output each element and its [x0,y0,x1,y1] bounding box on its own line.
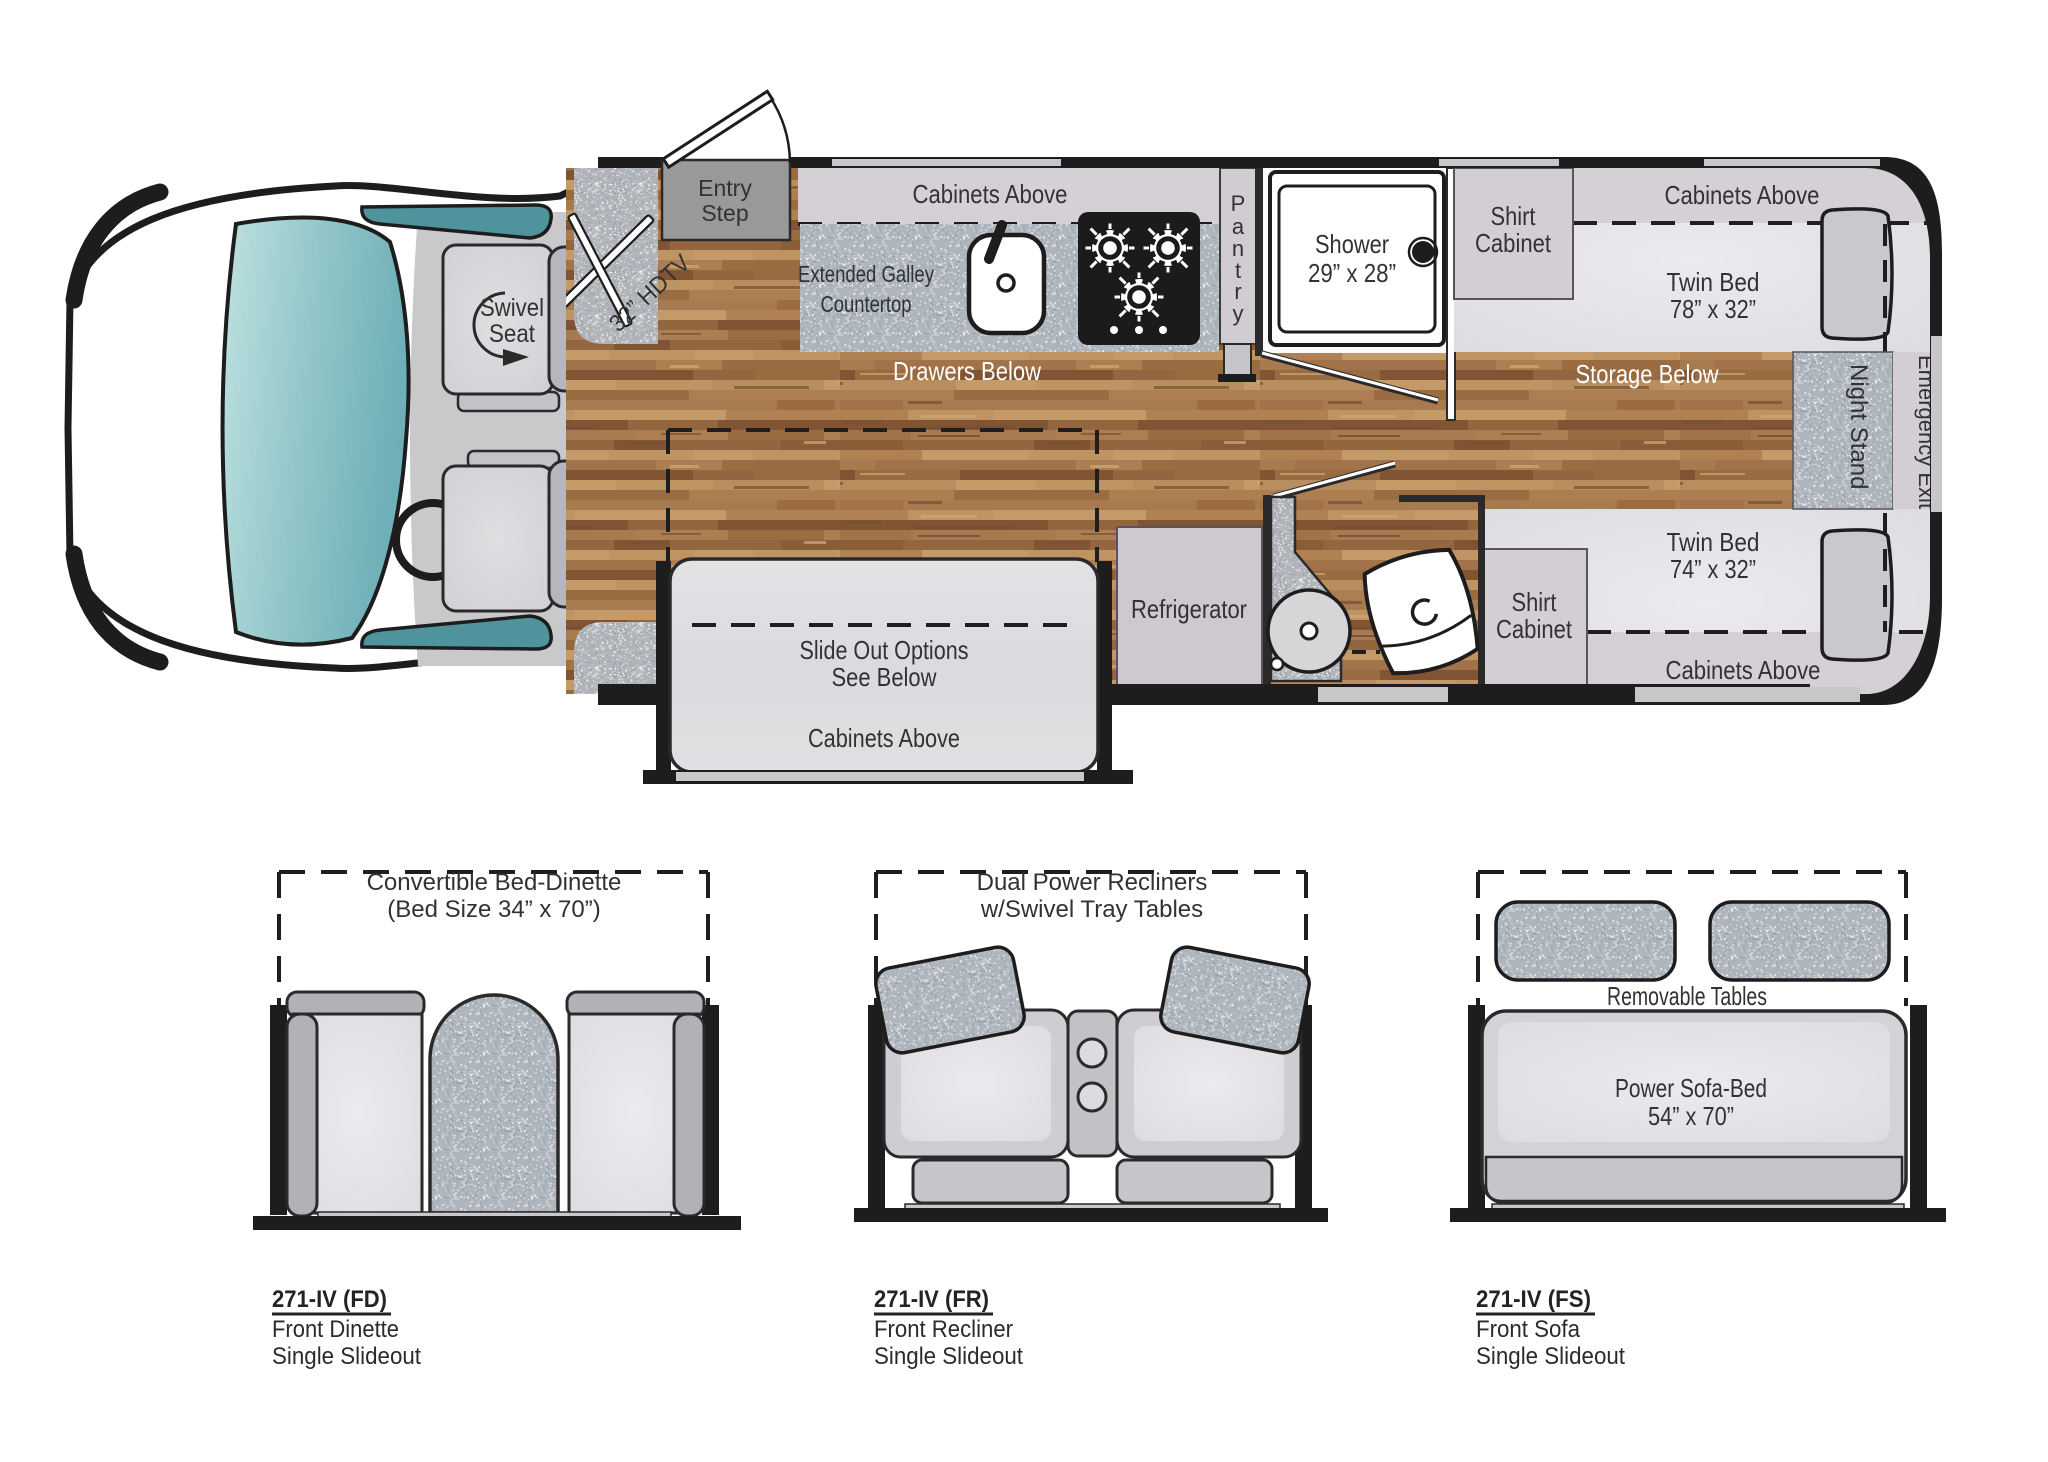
svg-text:Power Sofa-Bed: Power Sofa-Bed [1615,1073,1767,1103]
svg-text:54” x 70”: 54” x 70” [1648,1101,1734,1131]
svg-text:Storage Below: Storage Below [1576,359,1719,389]
svg-text:Entry: Entry [698,175,752,201]
svg-text:P: P [1231,191,1246,216]
svg-text:(Bed Size 34” x 70”): (Bed Size 34” x 70”) [387,896,600,923]
svg-text:Cabinet: Cabinet [1496,614,1573,644]
svg-text:Cabinets Above: Cabinets Above [1666,655,1821,685]
svg-text:Single Slideout: Single Slideout [1476,1343,1625,1370]
svg-text:74” x 32”: 74” x 32” [1670,554,1756,584]
svg-text:Front Recliner: Front Recliner [874,1316,1013,1343]
svg-text:Twin Bed: Twin Bed [1667,267,1760,297]
svg-text:Extended Galley: Extended Galley [798,261,934,287]
svg-text:Front Dinette: Front Dinette [272,1316,399,1343]
svg-text:Shirt: Shirt [1491,201,1537,231]
svg-text:Seat: Seat [489,320,535,348]
svg-text:Refrigerator: Refrigerator [1131,594,1247,624]
svg-text:Cabinets Above: Cabinets Above [1665,180,1820,210]
svg-text:Removable Tables: Removable Tables [1607,981,1767,1011]
svg-text:Cabinets Above: Cabinets Above [808,723,960,753]
svg-text:Cabinets Above: Cabinets Above [913,179,1068,209]
svg-text:78” x 32”: 78” x 32” [1670,294,1756,324]
svg-text:Single Slideout: Single Slideout [874,1343,1023,1370]
svg-text:Front Sofa: Front Sofa [1476,1316,1581,1343]
svg-text:Countertop: Countertop [821,291,912,317]
svg-text:Cabinet: Cabinet [1475,228,1552,258]
svg-text:Shower: Shower [1315,229,1389,259]
svg-text:Swivel: Swivel [480,294,544,322]
svg-text:Single Slideout: Single Slideout [272,1343,421,1370]
svg-text:y: y [1233,301,1244,326]
svg-text:Dual Power Recliners: Dual Power Recliners [977,869,1208,896]
svg-text:Shirt: Shirt [1512,587,1558,617]
svg-text:Drawers Below: Drawers Below [893,356,1041,386]
svg-text:271-IV (FS): 271-IV (FS) [1476,1286,1591,1313]
svg-text:Night Stand: Night Stand [1845,364,1872,489]
svg-text:271-IV (FD): 271-IV (FD) [272,1286,387,1313]
svg-text:29” x 28”: 29” x 28” [1308,258,1396,288]
svg-text:Slide Out Options: Slide Out Options [800,635,969,665]
svg-text:Step: Step [701,200,748,226]
svg-text:See Below: See Below [832,662,937,692]
svg-text:Twin Bed: Twin Bed [1667,527,1760,557]
svg-text:271-IV (FR): 271-IV (FR) [874,1286,989,1313]
svg-text:Convertible Bed-Dinette: Convertible Bed-Dinette [367,869,622,896]
svg-text:w/Swivel Tray Tables: w/Swivel Tray Tables [980,896,1203,923]
